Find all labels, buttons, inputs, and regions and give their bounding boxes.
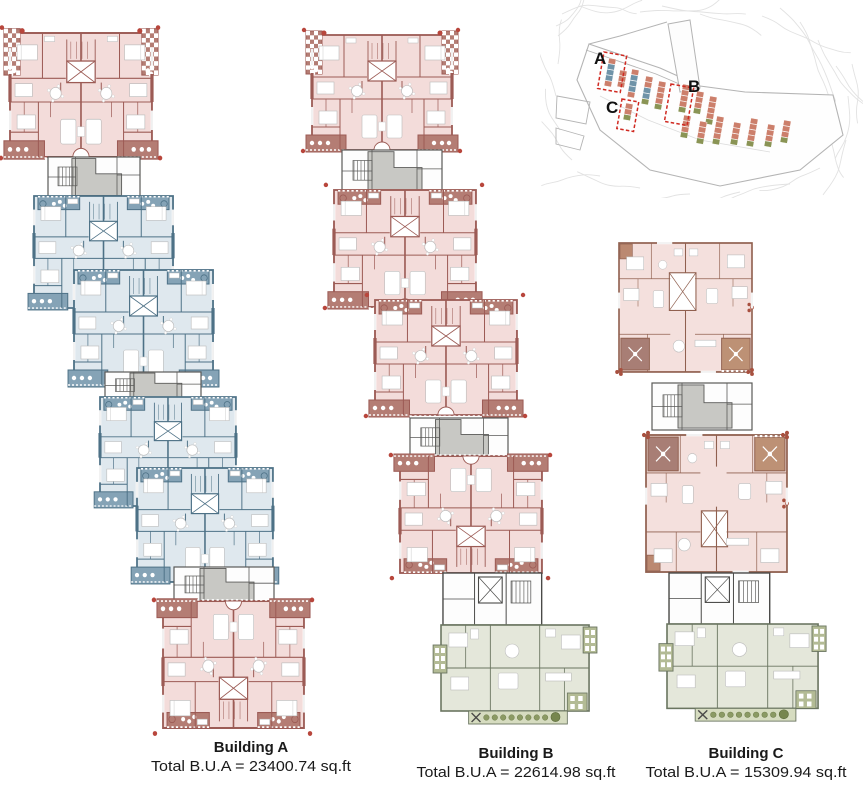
- svg-text:Building C: Building C: [709, 745, 784, 762]
- svg-text:Building A: Building A: [214, 739, 289, 756]
- svg-text:Total B.U.A = 22614.98 sq.ft: Total B.U.A = 22614.98 sq.ft: [417, 764, 617, 781]
- svg-text:Building B: Building B: [479, 745, 554, 762]
- svg-text:B: B: [688, 77, 700, 96]
- svg-text:Total B.U.A = 15309.94 sq.ft: Total B.U.A = 15309.94 sq.ft: [646, 764, 848, 781]
- svg-text:C: C: [606, 98, 618, 117]
- svg-text:Total B.U.A = 23400.74 sq.ft: Total B.U.A = 23400.74 sq.ft: [151, 758, 352, 775]
- svg-text:A: A: [594, 49, 606, 68]
